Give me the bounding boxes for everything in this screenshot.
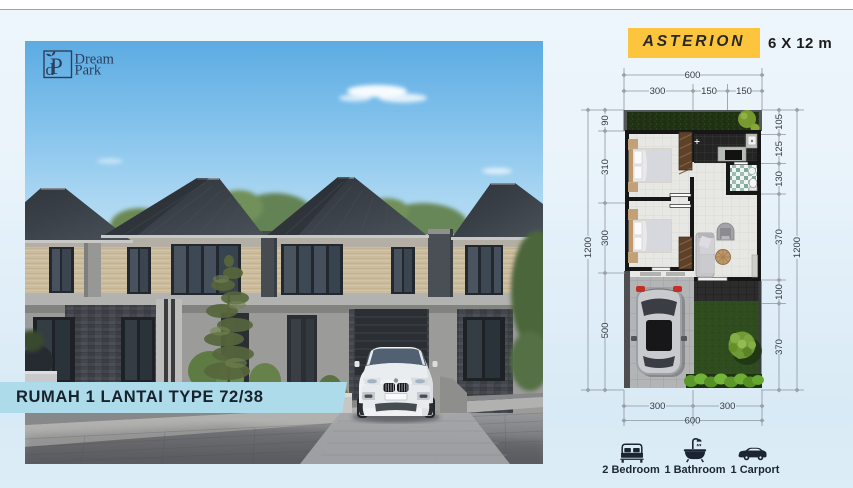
svg-text:300: 300: [650, 401, 666, 412]
svg-text:1200: 1200: [792, 237, 803, 258]
svg-text:150: 150: [701, 86, 717, 97]
svg-text:130: 130: [774, 171, 785, 187]
svg-text:370: 370: [774, 229, 785, 245]
svg-text:310: 310: [600, 159, 611, 175]
svg-text:600: 600: [685, 70, 701, 81]
svg-text:300: 300: [600, 230, 611, 246]
svg-text:500: 500: [600, 323, 611, 339]
svg-text:1200: 1200: [583, 237, 594, 258]
svg-text:100: 100: [774, 284, 785, 300]
svg-text:600: 600: [685, 416, 701, 427]
svg-text:300: 300: [720, 401, 736, 412]
svg-text:370: 370: [774, 339, 785, 355]
svg-text:105: 105: [774, 114, 785, 130]
svg-text:150: 150: [736, 86, 752, 97]
svg-text:125: 125: [774, 141, 785, 157]
svg-text:90: 90: [600, 115, 611, 126]
svg-text:300: 300: [650, 86, 666, 97]
